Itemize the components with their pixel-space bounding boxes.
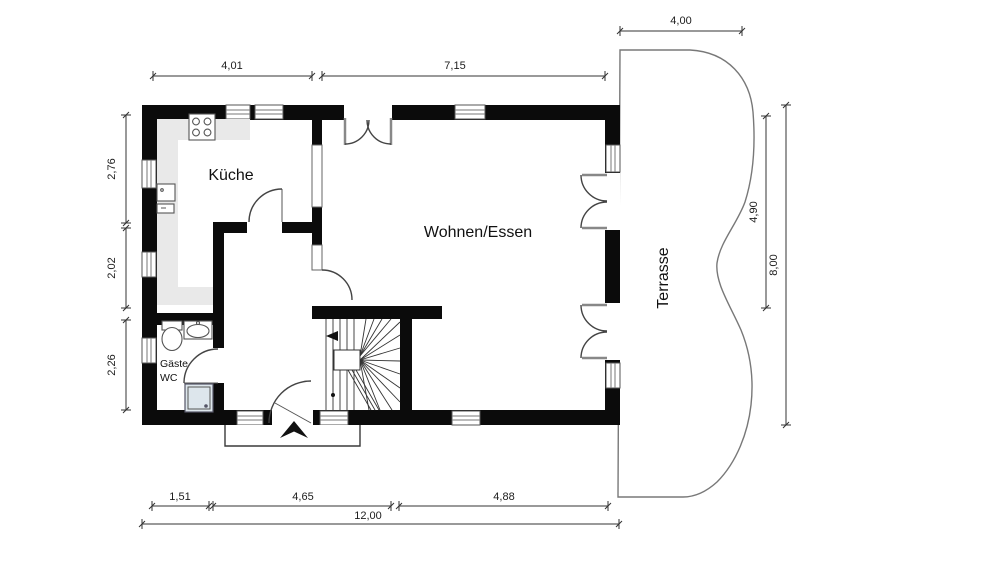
- floor-plan: 4,00 4,01 7,15 2,76 2,02 2,26 4,90 8,00 …: [0, 0, 1000, 563]
- toilet-icon: [162, 321, 182, 351]
- window-icon: [142, 252, 156, 277]
- kitchen-sink-icon: [157, 184, 175, 213]
- window-icon: [226, 105, 250, 119]
- room-label-wc-1: Gäste: [160, 358, 188, 370]
- room-label-living: Wohnen/Essen: [424, 224, 532, 241]
- window-icon: [255, 105, 283, 119]
- dim-left-3: 2,26: [106, 354, 118, 375]
- floor-plan-canvas: 4,00 4,01 7,15 2,76 2,02 2,26 4,90 8,00 …: [0, 0, 1000, 563]
- dim-bottom-1: 1,51: [169, 491, 190, 503]
- dim-bottom-2: 4,65: [292, 491, 313, 503]
- window-icon: [237, 411, 263, 425]
- building: [142, 105, 620, 425]
- window-icon: [606, 363, 620, 388]
- dim-right-inner: 4,90: [748, 201, 760, 222]
- washbasin-icon: [184, 321, 212, 339]
- interior-glazing: [312, 245, 322, 270]
- window-icon: [452, 411, 480, 425]
- dim-left-2: 2,02: [106, 257, 118, 278]
- dim-terrace-width: 4,00: [670, 15, 691, 27]
- dim-left-1: 2,76: [106, 158, 118, 179]
- window-icon: [320, 411, 348, 425]
- dim-top-2: 7,15: [444, 60, 465, 72]
- dim-bottom-3: 4,88: [493, 491, 514, 503]
- room-label-wc-2: WC: [160, 372, 178, 384]
- dim-right-total: 8,00: [768, 254, 780, 275]
- terrace-outline: [618, 50, 754, 497]
- window-icon: [142, 338, 156, 363]
- stove-icon: [189, 114, 215, 140]
- dim-top-1: 4,01: [221, 60, 242, 72]
- shower-icon: [185, 384, 213, 412]
- window-icon: [142, 160, 156, 188]
- interior-glazing: [312, 145, 322, 207]
- room-label-terrace: Terrasse: [655, 247, 672, 308]
- dim-bottom-total: 12,00: [354, 510, 382, 522]
- room-label-kitchen: Küche: [208, 167, 253, 184]
- window-icon: [606, 145, 620, 172]
- window-icon: [455, 105, 485, 119]
